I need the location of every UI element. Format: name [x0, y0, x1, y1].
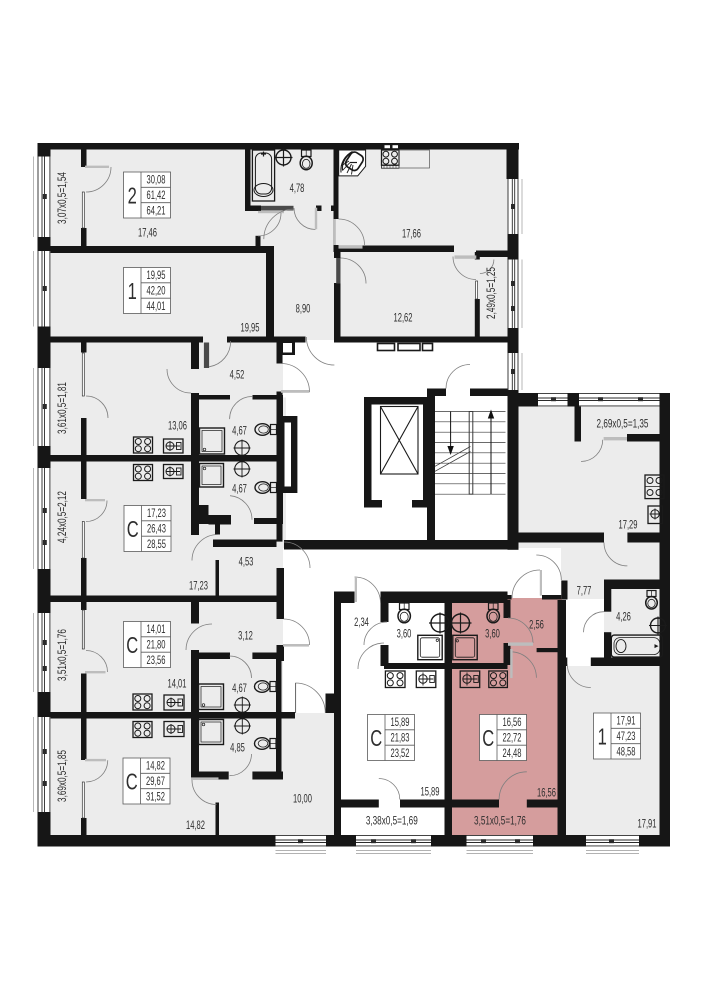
svg-text:4,67: 4,67 — [232, 483, 247, 496]
svg-text:8,90: 8,90 — [296, 303, 311, 316]
svg-text:3,38x0,5=1,69: 3,38x0,5=1,69 — [366, 815, 418, 828]
svg-text:44,01: 44,01 — [147, 300, 166, 313]
svg-text:61,42: 61,42 — [147, 189, 166, 202]
svg-text:16,56: 16,56 — [537, 787, 556, 800]
svg-text:2: 2 — [128, 184, 137, 209]
svg-text:47,23: 47,23 — [617, 730, 636, 743]
svg-text:26,43: 26,43 — [147, 523, 166, 536]
svg-text:3,12: 3,12 — [238, 630, 253, 643]
svg-text:17,23: 17,23 — [147, 508, 166, 521]
svg-text:4,78: 4,78 — [290, 183, 305, 196]
svg-text:C: C — [126, 770, 138, 795]
svg-text:42,20: 42,20 — [147, 285, 166, 298]
svg-text:31,52: 31,52 — [146, 791, 165, 804]
svg-text:17,29: 17,29 — [619, 519, 638, 532]
svg-text:28,55: 28,55 — [147, 538, 166, 551]
svg-text:19,95: 19,95 — [147, 270, 166, 283]
svg-text:4,53: 4,53 — [239, 556, 254, 569]
svg-text:2,34: 2,34 — [354, 617, 369, 630]
svg-text:3,60: 3,60 — [485, 628, 500, 641]
svg-text:3,51x0,5=1,76: 3,51x0,5=1,76 — [474, 815, 526, 828]
svg-text:10,00: 10,00 — [293, 793, 312, 806]
svg-text:3,51x0,5=1,76: 3,51x0,5=1,76 — [57, 629, 70, 681]
svg-text:64,21: 64,21 — [147, 205, 166, 218]
svg-text:15,89: 15,89 — [421, 786, 440, 799]
svg-text:C: C — [482, 726, 494, 751]
svg-text:1: 1 — [598, 725, 607, 750]
svg-text:23,56: 23,56 — [147, 654, 166, 667]
svg-text:14,82: 14,82 — [186, 820, 205, 833]
svg-text:24,48: 24,48 — [503, 747, 522, 760]
svg-text:C: C — [126, 633, 138, 658]
svg-text:2,56: 2,56 — [529, 619, 544, 632]
svg-text:3,07x0,5=1,54: 3,07x0,5=1,54 — [57, 172, 70, 224]
svg-text:4,52: 4,52 — [230, 369, 245, 382]
svg-text:19,95: 19,95 — [241, 322, 260, 335]
svg-text:21,83: 21,83 — [391, 732, 410, 745]
svg-text:48,58: 48,58 — [617, 746, 636, 759]
svg-text:14,82: 14,82 — [146, 760, 165, 773]
svg-text:C: C — [370, 726, 382, 751]
svg-text:1: 1 — [128, 279, 137, 304]
svg-text:4,67: 4,67 — [232, 683, 247, 696]
svg-text:C: C — [127, 517, 139, 542]
svg-text:3,60: 3,60 — [397, 628, 412, 641]
svg-text:3,69x0,5=1,85: 3,69x0,5=1,85 — [57, 750, 70, 802]
svg-text:17,91: 17,91 — [617, 715, 636, 728]
svg-text:4,26: 4,26 — [616, 611, 631, 624]
svg-text:22,72: 22,72 — [503, 732, 522, 745]
svg-text:4,67: 4,67 — [232, 425, 247, 438]
svg-text:17,66: 17,66 — [402, 228, 421, 241]
svg-text:12,62: 12,62 — [394, 312, 413, 325]
svg-text:21,80: 21,80 — [147, 639, 166, 652]
svg-text:15,89: 15,89 — [391, 717, 410, 730]
svg-text:16,56: 16,56 — [503, 717, 522, 730]
svg-text:3,61x0,5=1,81: 3,61x0,5=1,81 — [57, 382, 70, 434]
svg-text:13,06: 13,06 — [168, 420, 187, 433]
svg-text:4,24x0,5=2,12: 4,24x0,5=2,12 — [57, 491, 70, 543]
svg-text:14,01: 14,01 — [168, 678, 187, 691]
svg-text:29,67: 29,67 — [146, 775, 165, 788]
svg-text:23,52: 23,52 — [391, 747, 410, 760]
svg-text:2,69x0,5=1,35: 2,69x0,5=1,35 — [597, 418, 649, 431]
svg-text:17,23: 17,23 — [189, 580, 208, 593]
svg-text:17,91: 17,91 — [638, 818, 657, 831]
svg-text:30,08: 30,08 — [147, 174, 166, 187]
svg-text:4,85: 4,85 — [230, 742, 245, 755]
svg-text:2,49x0,5=1,25: 2,49x0,5=1,25 — [486, 267, 499, 319]
svg-text:14,01: 14,01 — [147, 624, 166, 637]
svg-text:17,46: 17,46 — [138, 227, 157, 240]
svg-text:7,77: 7,77 — [577, 585, 592, 598]
